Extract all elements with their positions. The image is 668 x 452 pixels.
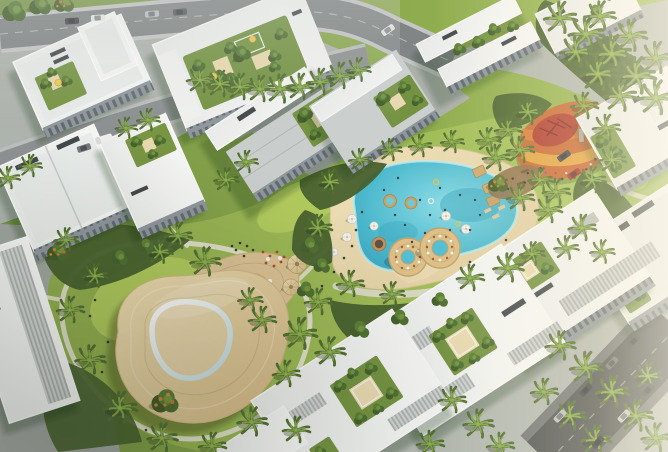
aerial-community-render: Aerial rendering of a villa community wi…: [0, 0, 668, 452]
render-canvas: Aerial rendering of a villa community wi…: [0, 0, 668, 452]
warm-tint-overlay: [0, 0, 668, 452]
